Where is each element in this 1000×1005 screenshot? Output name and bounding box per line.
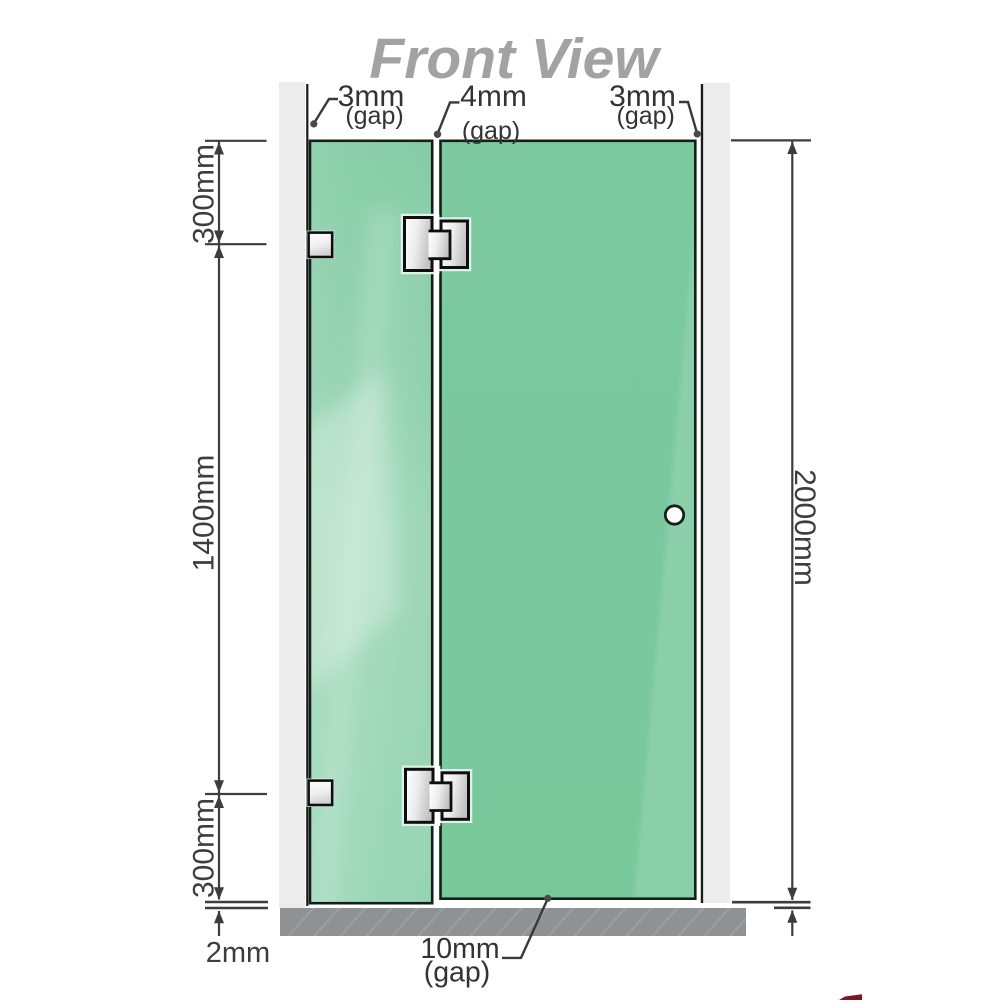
svg-text:2000mm: 2000mm <box>788 469 821 586</box>
svg-text:300mm: 300mm <box>188 144 221 244</box>
svg-text:(gap): (gap) <box>345 102 403 130</box>
svg-text:(gap): (gap) <box>424 957 491 989</box>
svg-text:(gap): (gap) <box>617 102 675 130</box>
svg-text:1400mm: 1400mm <box>188 455 221 572</box>
svg-text:300mm: 300mm <box>188 798 221 898</box>
svg-text:4mm: 4mm <box>460 80 527 113</box>
svg-text:2mm: 2mm <box>206 937 270 969</box>
svg-text:(gap): (gap) <box>462 117 520 145</box>
